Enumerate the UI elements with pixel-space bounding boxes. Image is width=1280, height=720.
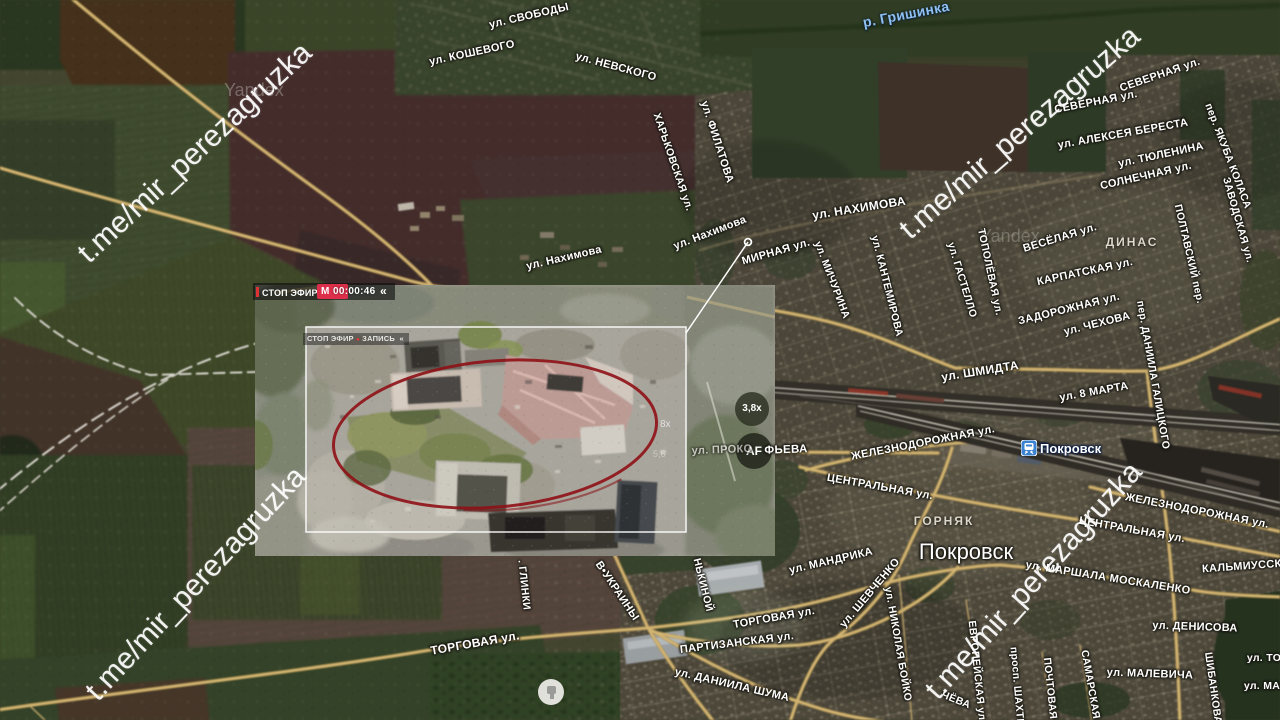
svg-text:8х: 8х: [660, 419, 671, 430]
svg-text:5,6: 5,6: [653, 449, 666, 459]
